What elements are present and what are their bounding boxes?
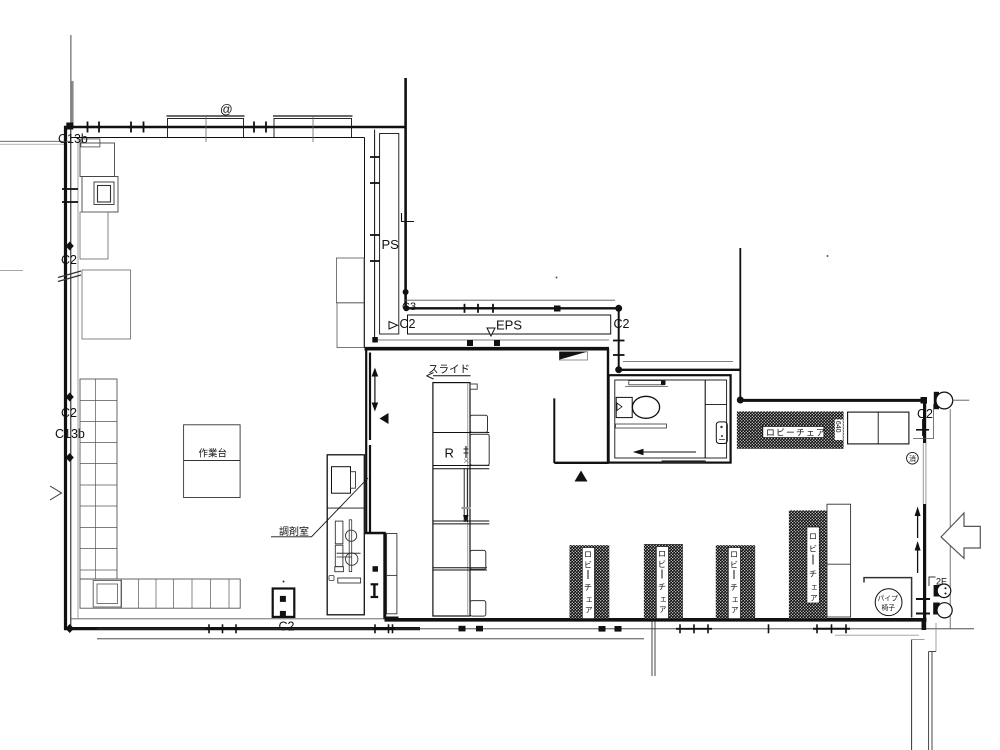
svg-text:ビ: ビ — [658, 560, 666, 569]
svg-text:ビ: ビ — [730, 561, 738, 570]
svg-text:ビ: ビ — [584, 561, 592, 570]
svg-text:チ: チ — [809, 570, 817, 579]
svg-text:ェ: ェ — [811, 582, 819, 591]
svg-text:ロ: ロ — [658, 550, 666, 559]
svg-text:ェ: ェ — [732, 595, 740, 604]
svg-text:チ: チ — [730, 583, 738, 592]
svg-text:@: @ — [220, 103, 233, 117]
svg-text:C2: C2 — [61, 253, 77, 267]
svg-text:ェ: ェ — [586, 595, 594, 604]
svg-text:R: R — [445, 446, 454, 461]
svg-text:ア: ア — [731, 606, 739, 615]
svg-text:ア: ア — [810, 594, 818, 603]
svg-text:ア: ア — [585, 606, 593, 615]
svg-text:ロ: ロ — [584, 550, 592, 559]
svg-text:ロビーチェア: ロビーチェア — [766, 428, 826, 438]
svg-text:作業台: 作業台 — [199, 448, 228, 460]
svg-text:C2: C2 — [917, 407, 933, 421]
svg-text:ェ: ェ — [660, 594, 668, 603]
svg-text:C2: C2 — [61, 406, 77, 420]
svg-text:スライド: スライド — [428, 364, 470, 376]
svg-text:C2: C2 — [279, 620, 295, 634]
svg-text:チ: チ — [658, 583, 666, 592]
svg-text:640: 640 — [834, 421, 841, 433]
svg-text:ビ: ビ — [809, 545, 817, 554]
svg-text:チ: チ — [584, 583, 592, 592]
svg-text:ア: ア — [659, 605, 667, 614]
svg-text:調剤室: 調剤室 — [279, 525, 309, 538]
svg-text:ロ: ロ — [730, 550, 738, 559]
svg-text:消: 消 — [909, 454, 916, 463]
svg-text:C2: C2 — [614, 317, 630, 331]
svg-text:EPS: EPS — [496, 318, 522, 333]
svg-text:ロ: ロ — [809, 532, 817, 541]
svg-text:PS: PS — [382, 237, 400, 252]
svg-text:パイプ: パイプ — [878, 595, 899, 603]
svg-text:椅子: 椅子 — [882, 603, 896, 612]
